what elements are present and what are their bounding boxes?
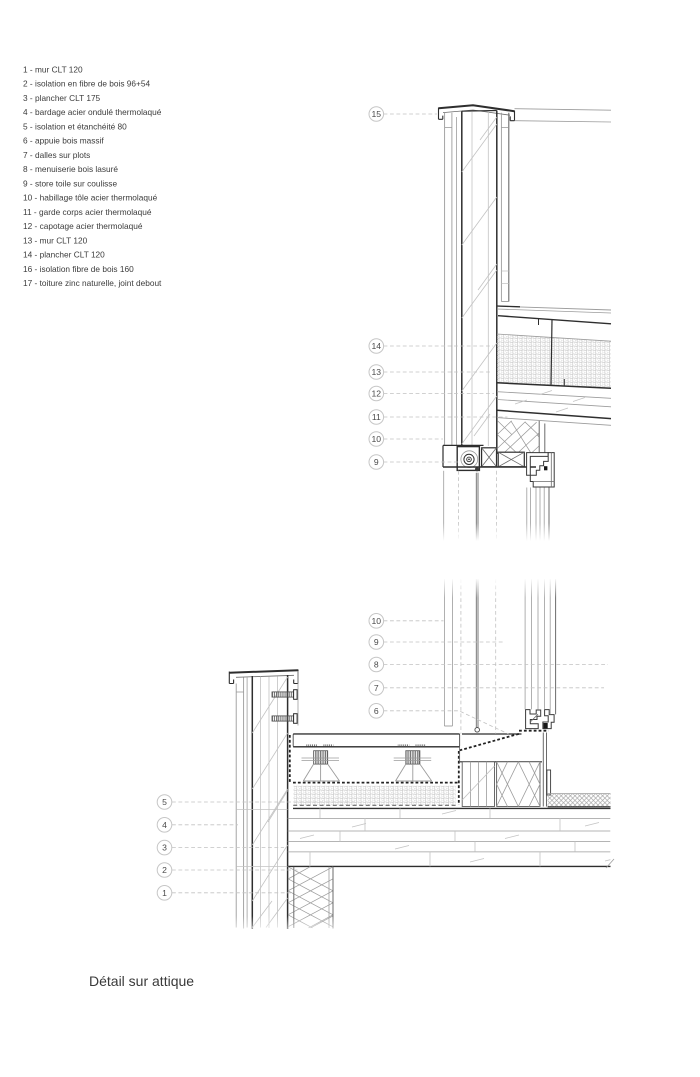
svg-text:1: 1 (162, 888, 167, 898)
svg-text:3 - plancher CLT 175: 3 - plancher CLT 175 (23, 93, 101, 103)
svg-text:6 - appuie bois massif: 6 - appuie bois massif (23, 136, 104, 146)
svg-text:14 - plancher CLT 120: 14 - plancher CLT 120 (23, 250, 105, 260)
svg-text:10: 10 (372, 434, 382, 444)
svg-text:11: 11 (372, 412, 381, 422)
svg-text:9 - store toile sur coulisse: 9 - store toile sur coulisse (23, 178, 117, 188)
svg-text:1 - mur CLT 120: 1 - mur CLT 120 (23, 64, 83, 74)
svg-text:13 - mur CLT 120: 13 - mur CLT 120 (23, 235, 88, 245)
svg-text:2: 2 (162, 865, 167, 875)
svg-text:7 - dalles sur plots: 7 - dalles sur plots (23, 150, 90, 160)
svg-text:14: 14 (372, 341, 382, 351)
svg-text:8 - menuiserie bois lasuré: 8 - menuiserie bois lasuré (23, 164, 118, 174)
svg-text:2 - isolation en fibre de bois: 2 - isolation en fibre de bois 96+54 (23, 79, 150, 89)
svg-text:10 - habillage tôle acier ther: 10 - habillage tôle acier thermolaqué (23, 193, 158, 203)
svg-text:9: 9 (374, 637, 379, 647)
svg-text:15: 15 (372, 109, 382, 119)
svg-text:7: 7 (374, 683, 379, 693)
svg-text:6: 6 (374, 706, 379, 716)
svg-text:12 - capotage acier thermolaqu: 12 - capotage acier thermolaqué (23, 221, 143, 231)
svg-text:8: 8 (374, 660, 379, 670)
svg-text:11 - garde corps acier thermol: 11 - garde corps acier thermolaqué (23, 207, 152, 217)
svg-text:Détail sur attique: Détail sur attique (89, 973, 194, 989)
svg-text:16 - isolation fibre de bois 1: 16 - isolation fibre de bois 160 (23, 264, 134, 274)
svg-text:4 - bardage acier ondulé therm: 4 - bardage acier ondulé thermolaqué (23, 107, 162, 117)
svg-text:13: 13 (372, 367, 382, 377)
svg-text:17 - toiture zinc naturelle, j: 17 - toiture zinc naturelle, joint debou… (23, 278, 162, 288)
svg-text:12: 12 (372, 389, 382, 399)
svg-text:10: 10 (372, 616, 382, 626)
svg-text:3: 3 (162, 843, 167, 853)
svg-text:5: 5 (162, 797, 167, 807)
svg-text:5 - isolation et étanchéité 80: 5 - isolation et étanchéité 80 (23, 121, 127, 131)
svg-text:4: 4 (162, 820, 167, 830)
svg-text:9: 9 (374, 457, 379, 467)
